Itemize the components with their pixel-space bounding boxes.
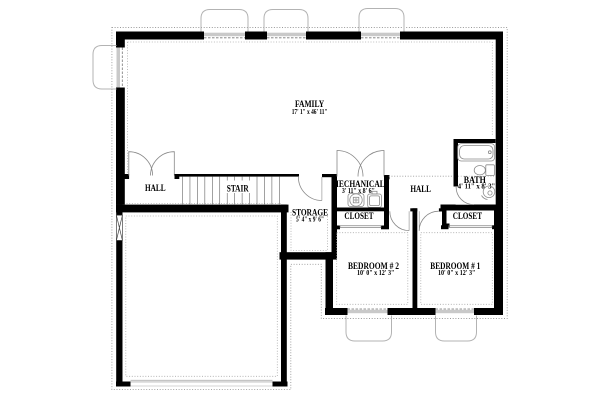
svg-text:STAIR: STAIR	[227, 184, 249, 194]
svg-text:5' 4" x 9' 6": 5' 4" x 9' 6"	[296, 216, 324, 224]
svg-text:CLOSET: CLOSET	[344, 211, 373, 221]
svg-text:10' 0" x 12' 3": 10' 0" x 12' 3"	[357, 269, 395, 277]
svg-text:17' 1" x 46' 11": 17' 1" x 46' 11"	[292, 108, 328, 116]
svg-text:HALL: HALL	[410, 184, 431, 194]
svg-text:CLOSET: CLOSET	[453, 211, 482, 221]
svg-text:10' 0" x 12' 3": 10' 0" x 12' 3"	[438, 269, 476, 277]
svg-text:4' 11" x 8' 3": 4' 11" x 8' 3"	[458, 183, 496, 191]
svg-text:HALL: HALL	[145, 183, 166, 193]
